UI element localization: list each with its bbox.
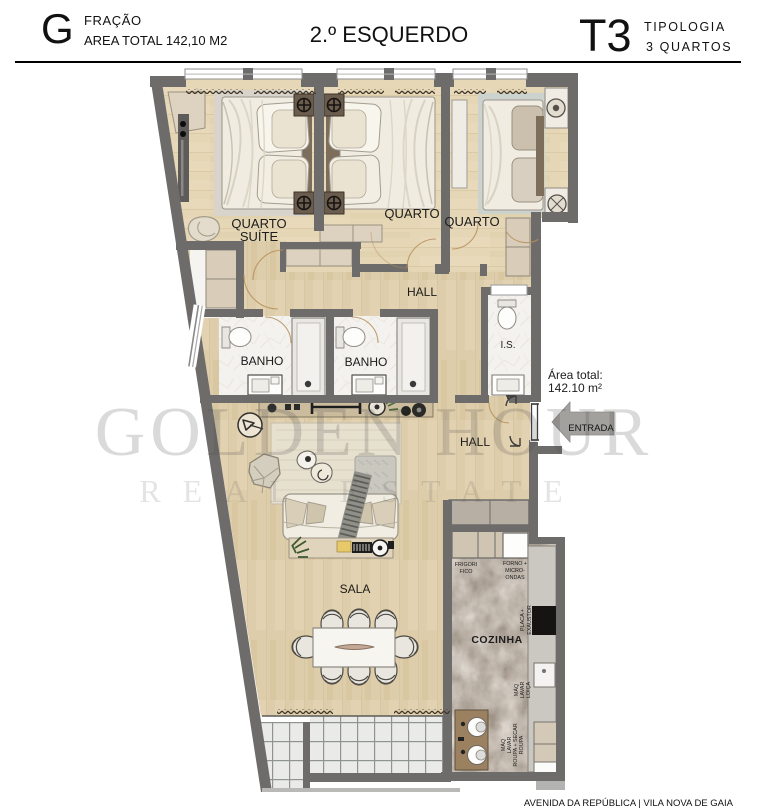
svg-text:G: G [41,5,74,52]
svg-text:MÁQ: MÁQ [500,739,507,751]
svg-text:BANHO: BANHO [241,354,284,368]
svg-text:GOLDEN HOUR: GOLDEN HOUR [95,394,654,471]
svg-text:QUARTO: QUARTO [444,214,499,229]
svg-text:AREA TOTAL 142,10 M2: AREA TOTAL 142,10 M2 [84,33,227,48]
svg-text:Área total:: Área total: [548,367,603,382]
svg-text:T3: T3 [579,10,632,61]
svg-text:REAL ESTATE: REAL ESTATE [139,473,584,509]
svg-text:SUÍTE: SUÍTE [240,229,279,244]
svg-text:2.º ESQUERDO: 2.º ESQUERDO [310,22,468,47]
svg-text:3 QUARTOS: 3 QUARTOS [646,40,732,54]
svg-text:FORNO +: FORNO + [503,561,527,567]
svg-text:COZINHA: COZINHA [471,634,522,646]
svg-text:FRAÇÃO: FRAÇÃO [84,13,142,28]
svg-text:ROUPA: ROUPA [519,735,525,754]
svg-text:MÁQ: MÁQ [513,684,520,696]
svg-text:EXAUSTOR: EXAUSTOR [527,605,533,635]
svg-text:HALL: HALL [407,285,437,299]
svg-text:TIPOLOGIA: TIPOLOGIA [644,20,726,34]
svg-text:MICRO-: MICRO- [505,568,525,574]
svg-text:LOIÇA: LOIÇA [526,682,532,699]
svg-text:BANHO: BANHO [345,355,388,369]
svg-text:FICO: FICO [460,569,473,575]
svg-text:PLACA +: PLACA + [520,609,526,631]
svg-text:I.S.: I.S. [500,340,515,351]
svg-text:FRIGORI: FRIGORI [455,562,477,568]
svg-text:AVENIDA DA REPÚBLICA | VILA NO: AVENIDA DA REPÚBLICA | VILA NOVA DE GAIA [524,798,734,809]
svg-text:SALA: SALA [340,582,371,596]
svg-text:QUARTO: QUARTO [384,206,439,221]
svg-text:142.10 m²: 142.10 m² [548,381,602,395]
svg-text:ONDAS: ONDAS [505,575,525,581]
